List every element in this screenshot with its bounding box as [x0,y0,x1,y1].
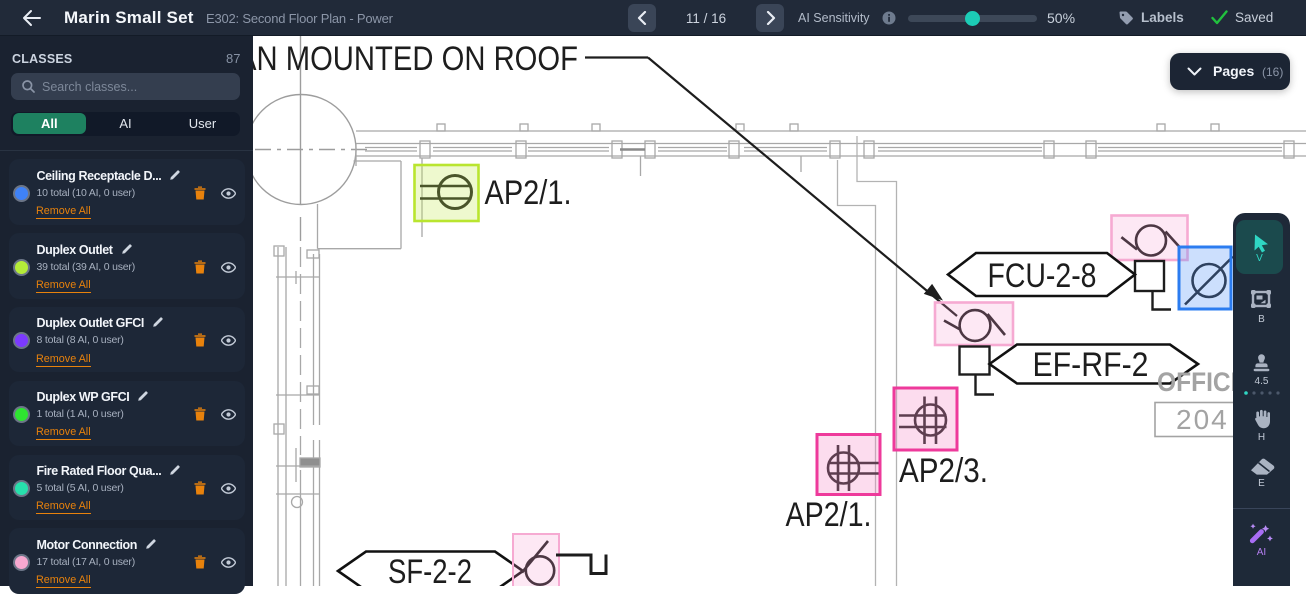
svg-text:SF-2-2: SF-2-2 [388,553,472,586]
svg-text:AN MOUNTED ON ROOF: AN MOUNTED ON ROOF [237,40,578,78]
svg-text:FCU-2-8: FCU-2-8 [988,257,1097,295]
svg-text:EF-RF-2: EF-RF-2 [1033,346,1149,384]
svg-text:204: 204 [1176,404,1229,435]
svg-text:AP2/1.: AP2/1. [786,496,872,534]
svg-text:AP2/3.: AP2/3. [899,452,988,490]
svg-text:AP2/1.: AP2/1. [485,174,572,212]
